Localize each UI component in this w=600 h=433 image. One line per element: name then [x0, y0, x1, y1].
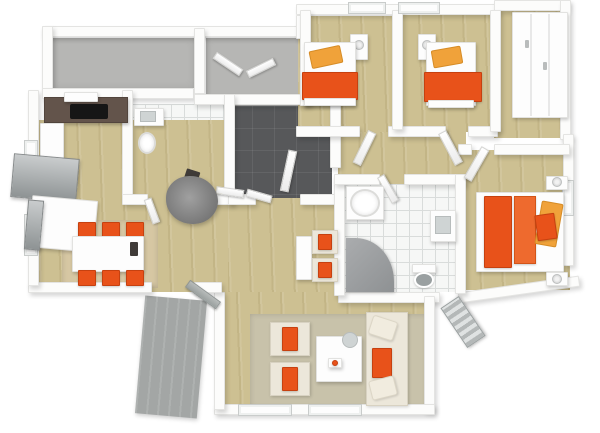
wall-top-left	[42, 26, 306, 37]
patio-floor	[135, 296, 207, 419]
wall-office-utility	[194, 28, 205, 94]
wall-smallbath-right	[224, 94, 235, 194]
office-floor	[52, 38, 194, 88]
window-living-2	[308, 404, 362, 416]
wall-bed3-bottom-a	[458, 144, 472, 155]
master-lamp-top	[552, 177, 562, 187]
master-pillow-orange	[534, 213, 557, 242]
wall-office-left	[42, 26, 53, 92]
armchair-2-cushion	[282, 367, 298, 391]
wardrobe-handle-2	[543, 62, 547, 70]
toilet-bowl	[414, 272, 434, 288]
wall-bed2-bed3	[490, 10, 501, 132]
sofa-cushion-orange	[372, 348, 392, 378]
wardrobe	[512, 12, 568, 118]
wardrobe-seam-1	[530, 14, 532, 116]
bathtub	[350, 189, 380, 217]
dining-chair-6	[126, 270, 144, 286]
window-bedroom1	[348, 2, 386, 14]
kitchen-hood	[64, 92, 98, 102]
bedroom1-bed-foot	[304, 98, 356, 106]
wall-bath-right	[455, 174, 466, 294]
armchair-1-cushion	[282, 327, 298, 351]
coffee-table-candle	[332, 360, 338, 366]
wall-bath-top-a	[334, 174, 380, 185]
kitchen-cooktop	[70, 104, 108, 119]
dining-chair-4	[78, 270, 96, 286]
window-bedroom2	[398, 2, 440, 14]
bath-sink-basin	[435, 216, 451, 234]
wall-hall-bottom-b	[300, 194, 336, 205]
floorplan-scene	[0, 0, 600, 433]
bedroom2-bed-foot	[428, 100, 474, 108]
accent-chair-2-cushion	[318, 262, 332, 278]
wall-living-left	[214, 292, 225, 410]
master-blanket-2	[514, 196, 536, 264]
plant	[166, 176, 218, 224]
accent-chair-1-cushion	[318, 234, 332, 250]
bedroom1-blanket	[302, 72, 358, 100]
smallbath-basin	[140, 111, 156, 122]
master-lamp-bottom	[552, 274, 562, 284]
window-living-1	[238, 404, 292, 416]
wardrobe-seam-2	[548, 14, 550, 116]
floorplan-image	[0, 0, 600, 433]
smallbath-toilet	[138, 132, 156, 154]
master-blanket-1	[484, 196, 512, 268]
coffee-table-vase	[342, 332, 358, 348]
bedroom2-blanket	[424, 72, 482, 102]
wall-bedrooms-bottom-a	[296, 126, 360, 137]
front-door	[440, 296, 485, 348]
dining-chair-5	[102, 270, 120, 286]
wardrobe-handle-1	[525, 40, 529, 48]
wall-bed3-bottom-b	[494, 144, 570, 155]
wall-top-right	[494, 0, 568, 11]
wall-living-right	[424, 296, 435, 412]
side-table	[296, 236, 312, 280]
wall-bed1-bed2	[392, 10, 403, 130]
dining-candlestick	[130, 242, 138, 256]
